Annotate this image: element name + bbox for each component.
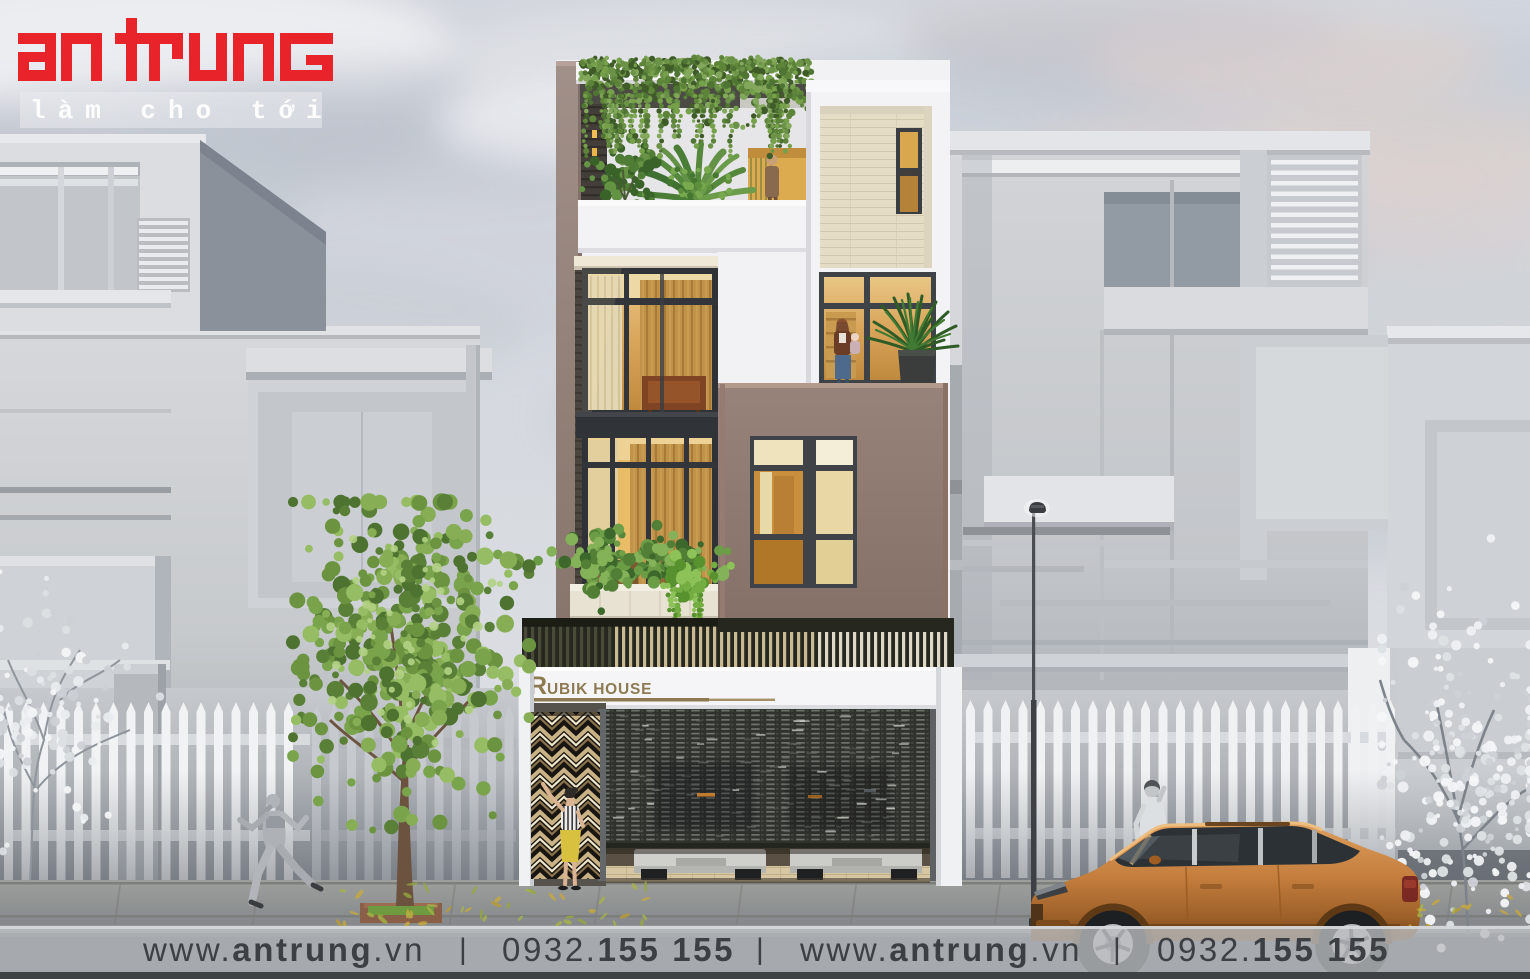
svg-text:www.antrung.vn: www.antrung.vn — [799, 931, 1082, 968]
svg-text:www.antrung.vn: www.antrung.vn — [142, 931, 425, 968]
svg-text:làm cho tới: làm cho tới — [30, 96, 334, 126]
svg-text:0932.155 155: 0932.155 155 — [502, 931, 735, 968]
svg-text:UBIK HOUSE: UBIK HOUSE — [547, 681, 652, 698]
svg-text:|: | — [756, 933, 766, 966]
svg-text:|: | — [459, 933, 469, 966]
svg-text:0932.155 155: 0932.155 155 — [1157, 931, 1390, 968]
svg-text:|: | — [1113, 933, 1123, 966]
